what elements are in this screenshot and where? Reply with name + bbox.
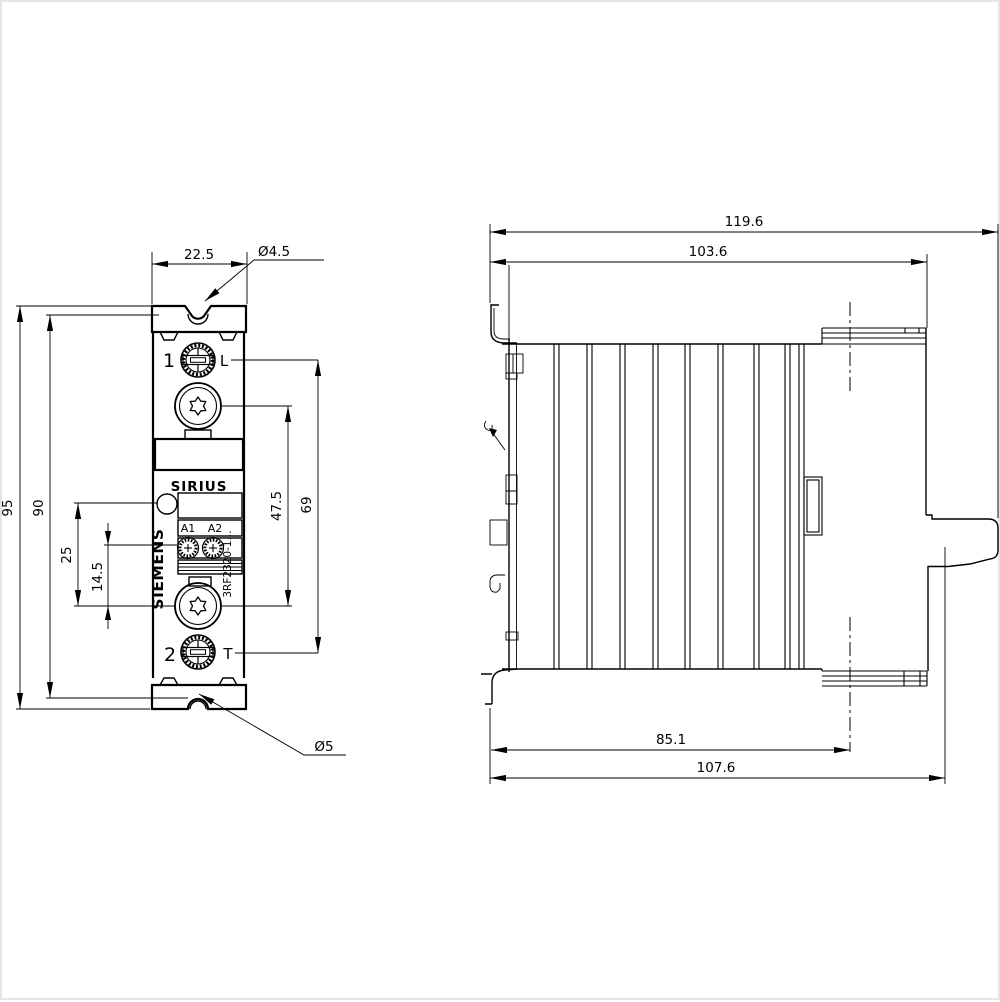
clip-hook xyxy=(490,575,505,592)
main-terminal-screw-2 xyxy=(181,635,215,669)
dim-top-hole: Ø4.5 xyxy=(258,244,290,260)
dim-terminal-spacing: 69 xyxy=(299,496,315,513)
load-marker-label: T xyxy=(222,645,233,663)
heatsink-fins xyxy=(554,344,804,669)
terminal-1-label: 1 xyxy=(163,350,175,372)
coil-terminal-a1-label: A1 xyxy=(181,522,196,535)
dim-overall-depth: 119.6 xyxy=(725,214,764,230)
flange-ear xyxy=(160,332,178,340)
top-hole-leader xyxy=(205,260,324,301)
terminal-connector xyxy=(926,515,998,671)
technical-drawing: SIRIUS SIEMENS 3RF2320-1... A1 A2 1 2 L … xyxy=(2,2,1000,1002)
main-terminal-screw-1 xyxy=(181,343,215,377)
brand-label: SIEMENS xyxy=(149,528,167,609)
release-clip-indicator xyxy=(484,421,505,450)
dim-bottom-hole: Ø5 xyxy=(314,739,333,755)
terminal-2-label: 2 xyxy=(164,644,176,666)
side-view xyxy=(481,302,998,752)
dim-coil-to-screw: 14.5 xyxy=(90,562,106,592)
dim-hole-spacing: 90 xyxy=(31,499,47,516)
rating-label-band xyxy=(155,439,243,470)
label-band-tab xyxy=(185,430,211,439)
dim-overall-height: 95 xyxy=(2,499,16,516)
top-rail-tab xyxy=(822,328,926,344)
bottom-mounting-hole xyxy=(190,701,206,709)
top-mounting-flange xyxy=(152,306,246,332)
dim-screw-spacing: 47.5 xyxy=(269,491,285,521)
din-clip-bottom xyxy=(481,669,517,704)
dim-housing-depth: 103.6 xyxy=(689,244,728,260)
front-view: SIRIUS SIEMENS 3RF2320-1... A1 A2 1 2 L … xyxy=(149,306,246,709)
article-number-label: 3RF2320-1... xyxy=(222,530,234,597)
din-release-lug xyxy=(490,520,507,545)
coil-terminal-a2-label: A2 xyxy=(208,522,223,535)
coil-screw-a2 xyxy=(203,538,224,559)
dim-rail-to-front: 85.1 xyxy=(656,732,686,748)
coil-screw-a1 xyxy=(178,538,199,559)
flange-ear xyxy=(219,332,237,340)
status-led xyxy=(157,494,177,514)
dim-led-to-screw: 25 xyxy=(59,546,75,563)
dim-width: 22.5 xyxy=(184,247,214,263)
dimension-drawing-canvas: SIRIUS SIEMENS 3RF2320-1... A1 A2 1 2 L … xyxy=(0,0,1000,1000)
clamp-screw-top xyxy=(175,383,221,429)
product-family-label: SIRIUS xyxy=(171,479,228,495)
line-marker-label: L xyxy=(220,352,229,370)
clip-detail xyxy=(506,475,517,491)
dim-depth-without-connector: 107.6 xyxy=(697,760,736,776)
clamp-screw-bottom xyxy=(175,583,221,629)
bottom-rail-tab xyxy=(822,669,927,686)
bottom-mounting-flange xyxy=(152,685,246,709)
side-view-dimensions: 119.6 103.6 85.1 107.6 xyxy=(490,214,998,784)
front-panel-window xyxy=(178,493,242,518)
din-clip-top xyxy=(491,305,517,343)
